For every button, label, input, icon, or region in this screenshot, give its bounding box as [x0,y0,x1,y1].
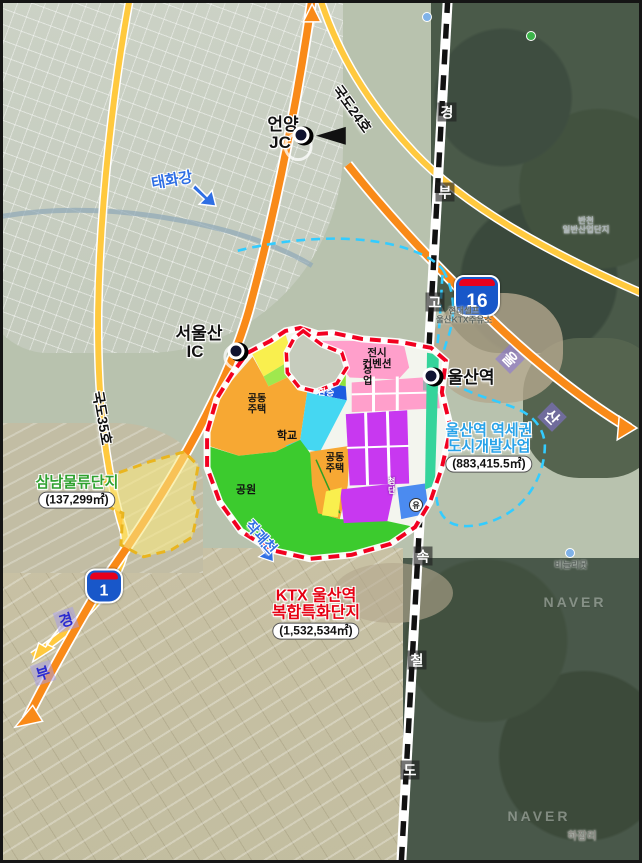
rail-char-gyeong: 경 [438,103,457,122]
eonyang-jc-marker [293,127,310,144]
naver-watermark-2: NAVER [508,808,571,824]
yeokse-zone-label-2: 도시개발사업 [448,439,531,455]
ulsan-expressway-east-arrow [617,416,637,440]
site-excluded-area [286,331,346,391]
park-label: 공원 [236,485,256,497]
gyeongbu-expwy-char-2: 부 [30,660,56,686]
route35-south-arrow [33,626,61,662]
landuse-circle-mark: 유 [409,498,423,512]
ktx-zone-label-2: 복합특화단지 [272,606,360,623]
eonyang-jc-label2: JC [269,134,291,152]
jc-slip-arrow [316,127,346,145]
hajamri-label: 하잠리 [568,831,597,843]
gyeongbu-ktx-rail-line [401,3,448,860]
rail-char-bu: 부 [436,183,455,202]
transfer-label: 환승 [317,388,334,399]
taehwa-river-line [3,210,312,265]
gyeongbu-expwy-char-1: 경 [53,607,79,633]
samnam-logistics-zone [105,452,198,557]
seoulsan-ic-marker [228,343,245,360]
ulsan-expwy-char-1: 울 [495,344,525,374]
ktx-zone-area: (1,532,534㎡) [272,623,359,640]
rail-char-do: 도 [401,761,420,780]
pond-label: 비늘리못 [554,561,587,571]
residential-2-label: 공동주택 [326,454,344,475]
taehwa-flow-arrow [192,184,216,206]
ulsan-expwy-char-2: 산 [537,402,567,432]
bancheon-label: 반천일반산업단지 [563,217,610,236]
route24-label: 국도24호 [330,83,374,135]
seoulsan-ic-label2: IC [187,343,204,361]
pond-poi-dot [565,548,575,558]
taehwa-river-label: 태화강 [150,170,194,193]
naver-watermark-1: NAVER [544,594,607,610]
gas-station-label: 현대셀프울산KTX주유소 [436,307,492,326]
rail-char-sok: 속 [414,547,433,566]
map-canvas[interactable]: 언양 JC 서울산 IC 울산역 태화강 작괘천 국도24호 국도35호 16 … [0,0,642,863]
seoulsan-ic-label: 서울산 [176,325,223,343]
ktx-zone-label-1: KTX 울산역 [276,589,357,606]
samnam-zone-area: (137,299㎡) [38,492,115,509]
samnam-zone-label: 삼남물류단지 [36,475,119,491]
commercial-label: 상업 [360,364,371,386]
hightech-label: 첨단 [387,477,395,495]
expressway-1-shield: 1 [85,569,123,604]
ulsan-station-label: 울산역 [448,369,495,387]
national-route-35 [33,3,130,656]
village-poi-dot [422,12,432,22]
expressway-north-arrow [303,4,321,22]
yeokse-zone-label-1: 울산역 역세권 [446,423,533,439]
yeokse-zone-area: (883,415.5㎡) [445,456,532,473]
jakgwae-stream-label: 작괘천 [243,518,280,557]
residential-1-label: 공동주택 [248,395,266,416]
national-route-24 [320,3,639,293]
expressway-south-arrow [15,705,43,727]
forest-area-midright [523,338,642,478]
rail-char-cheol: 철 [408,651,427,670]
school-label: 학교 [277,431,297,443]
ktx-site-boundary [207,328,451,559]
ulsan-station-marker [423,368,440,385]
route35-label: 국도35호 [90,390,114,446]
park-poi-dot [526,31,536,41]
